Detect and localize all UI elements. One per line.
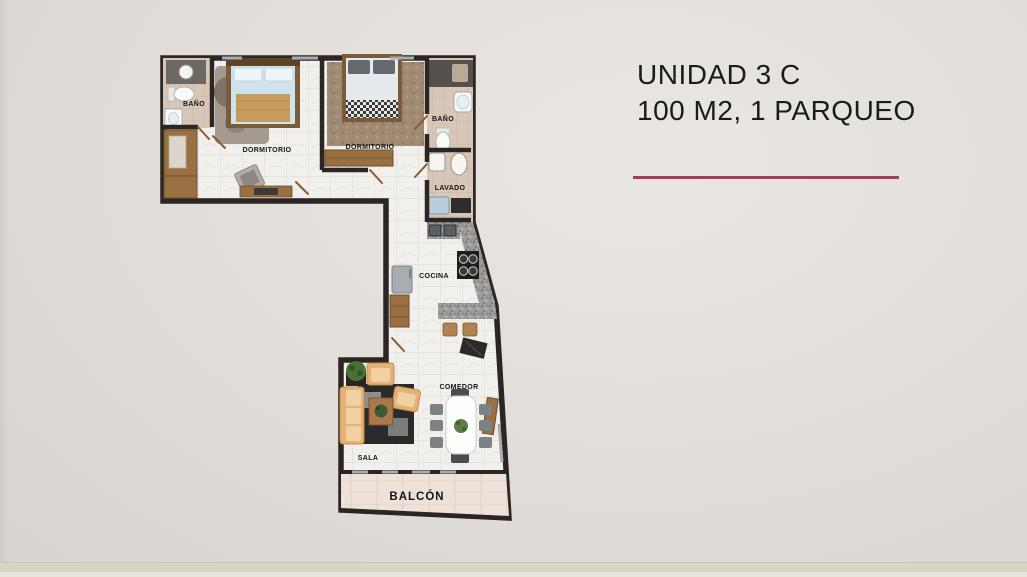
bedroom-right-bench — [325, 150, 393, 166]
sofa — [340, 387, 364, 444]
unit-title-block: UNIDAD 3 C 100 M2, 1 PARQUEO — [637, 57, 977, 129]
washer — [429, 197, 449, 214]
bedroom-left-dresser — [240, 186, 292, 197]
dining-chair — [479, 404, 492, 415]
unit-title: UNIDAD 3 C — [637, 57, 977, 93]
laundry-sink — [429, 153, 445, 171]
accent-divider-line — [633, 176, 899, 179]
pantry-cabinet — [390, 295, 409, 327]
room-label-dormitorio-right: DORMITORIO — [346, 144, 395, 151]
coffee-table — [369, 398, 393, 425]
laundry-tub — [451, 153, 467, 175]
room-label-dormitorio-left: DORMITORIO — [243, 147, 292, 154]
dining-chair — [479, 420, 492, 431]
room-label-cocina: COCINA — [419, 273, 449, 280]
dining-chair — [479, 437, 492, 448]
dining-chair — [430, 437, 443, 448]
footer-bottom-strip — [0, 572, 1027, 577]
stool — [443, 323, 457, 336]
armchair-right — [391, 386, 420, 412]
fridge — [392, 266, 412, 293]
table-plant — [454, 419, 468, 433]
vanity-sink — [179, 65, 193, 79]
bedroom-right-bed — [342, 54, 402, 122]
room-label-comedor: COMEDOR — [439, 384, 478, 391]
room-label-bano-left: BAÑO — [183, 99, 205, 108]
dining-chair — [430, 404, 443, 415]
room-label-sala: SALA — [358, 455, 378, 462]
dining-chair — [430, 420, 443, 431]
bedroom-left-bed — [226, 58, 300, 128]
room-label-balcon: BALCÓN — [389, 490, 444, 503]
stool — [463, 323, 477, 336]
breakfast-bar — [438, 303, 497, 319]
hall-closet — [164, 130, 197, 198]
stove — [457, 251, 479, 279]
dryer-counter — [451, 198, 471, 213]
armchair-top — [367, 363, 394, 385]
room-label-lavado: LAVADO — [435, 185, 466, 192]
planter — [346, 361, 366, 386]
room-label-bano-right: BAÑO — [432, 114, 454, 123]
presentation-slide: BAÑO DORMITORIO DORMITORIO BAÑO LAVADO C… — [0, 0, 1027, 577]
unit-specs: 100 M2, 1 PARQUEO — [637, 93, 977, 129]
accent-divider — [633, 176, 899, 180]
toilet — [168, 87, 194, 101]
floor-plan: BAÑO DORMITORIO DORMITORIO BAÑO LAVADO C… — [150, 45, 520, 535]
left-edge-shading — [0, 0, 9, 577]
